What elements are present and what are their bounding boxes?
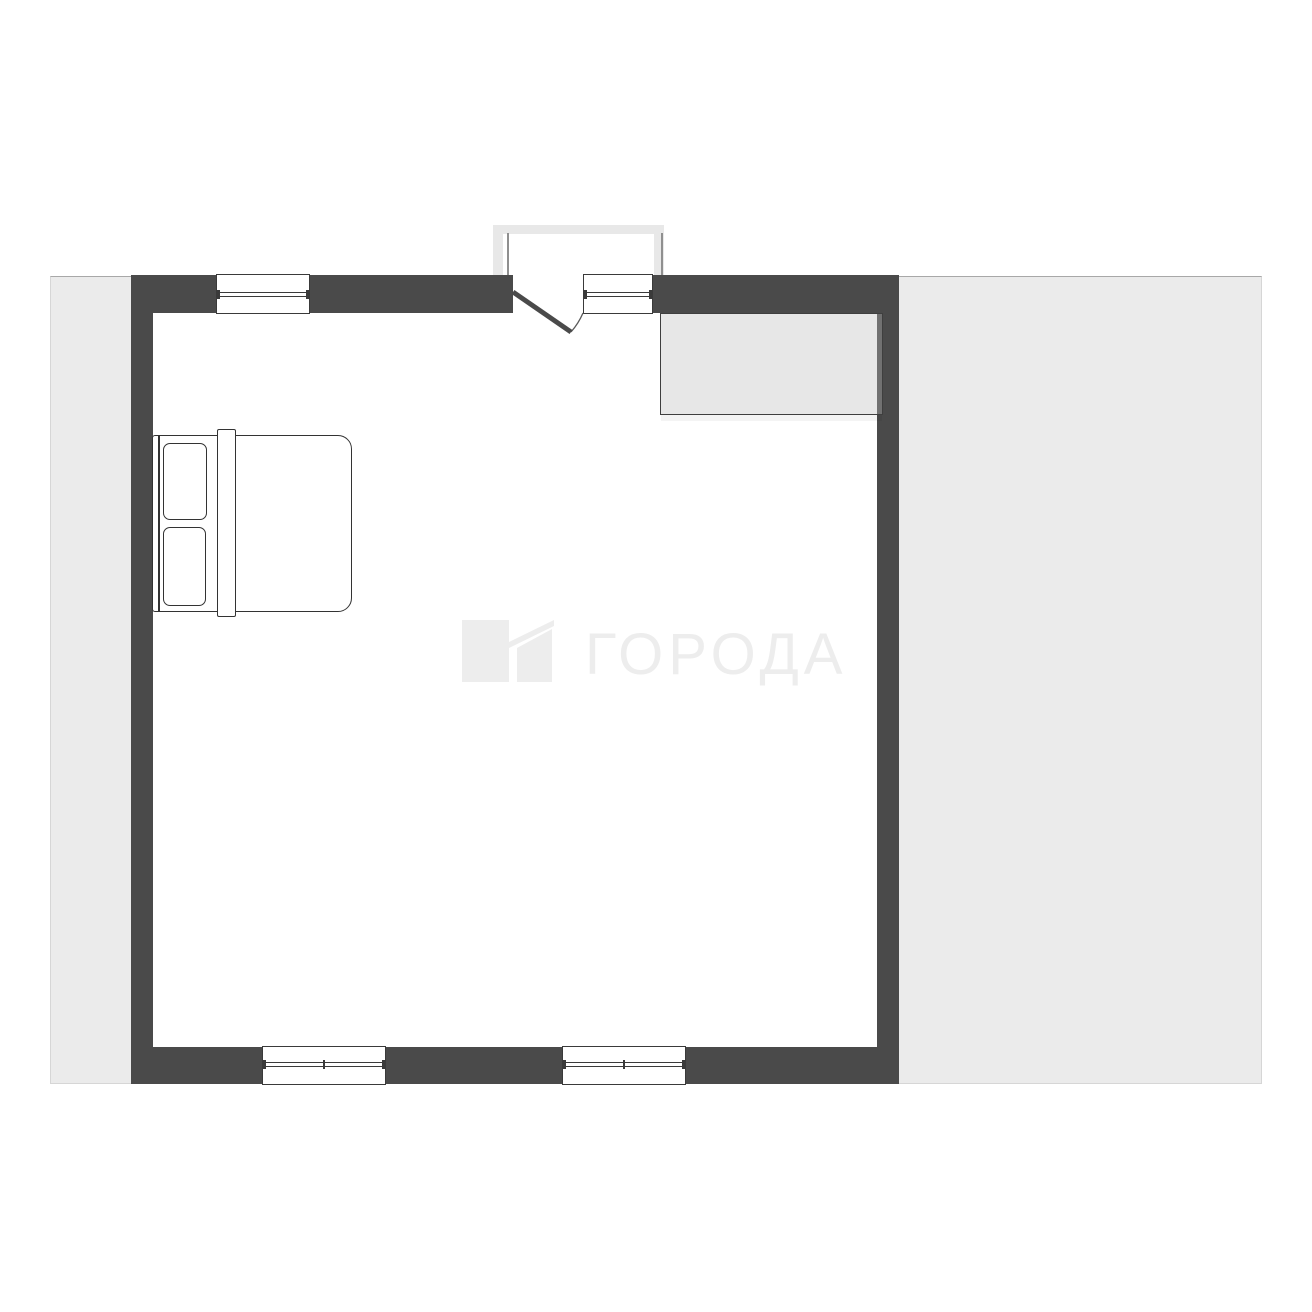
floorplan-canvas: ГОРОДА (0, 0, 1312, 1312)
window-glass-line (218, 292, 308, 297)
window-end-cap (306, 290, 309, 299)
goroda-logo-icon (461, 619, 556, 683)
entrance-threshold-top (493, 225, 664, 234)
window-end-cap (263, 1060, 266, 1069)
window-mullion (323, 1060, 325, 1069)
watermark-text: ГОРОДА (585, 626, 847, 684)
door-jamb-line-right (661, 233, 663, 275)
door-swing-icon (505, 270, 595, 345)
window-end-cap (682, 1060, 685, 1069)
bed-pillow (163, 443, 207, 520)
window-bottom-right (562, 1046, 686, 1085)
bed-pillow (163, 527, 206, 606)
bed-headboard-line (158, 436, 160, 611)
door-jamb-line-left (507, 233, 509, 275)
window-end-cap (649, 290, 652, 299)
window-end-cap (217, 290, 220, 299)
window-top-left (216, 274, 310, 314)
window-mullion (623, 1060, 625, 1069)
window-bottom-left (262, 1046, 386, 1085)
window-end-cap (563, 1060, 566, 1069)
wardrobe (660, 313, 883, 415)
window-end-cap (382, 1060, 385, 1069)
bed-blanket-fold (217, 429, 236, 617)
